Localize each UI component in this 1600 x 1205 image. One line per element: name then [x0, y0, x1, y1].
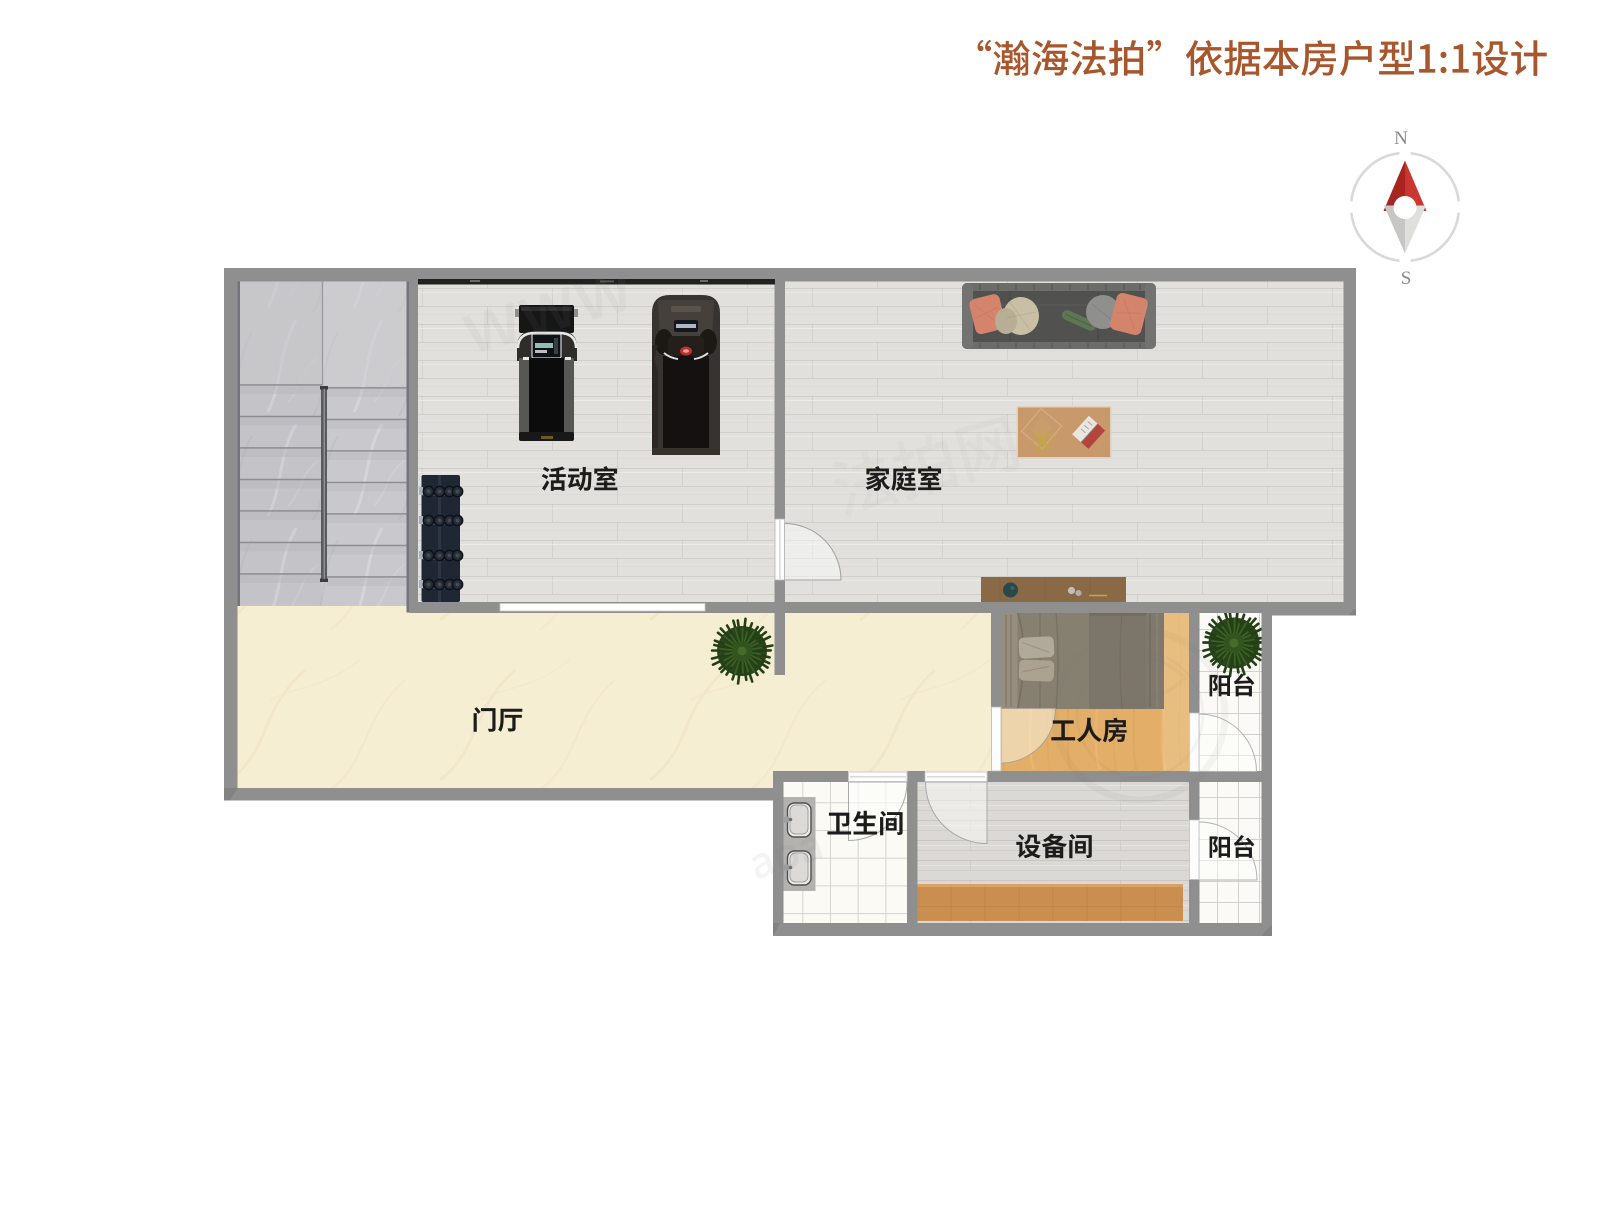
svg-text:S: S	[1401, 268, 1412, 289]
svg-text:N: N	[1394, 128, 1408, 149]
